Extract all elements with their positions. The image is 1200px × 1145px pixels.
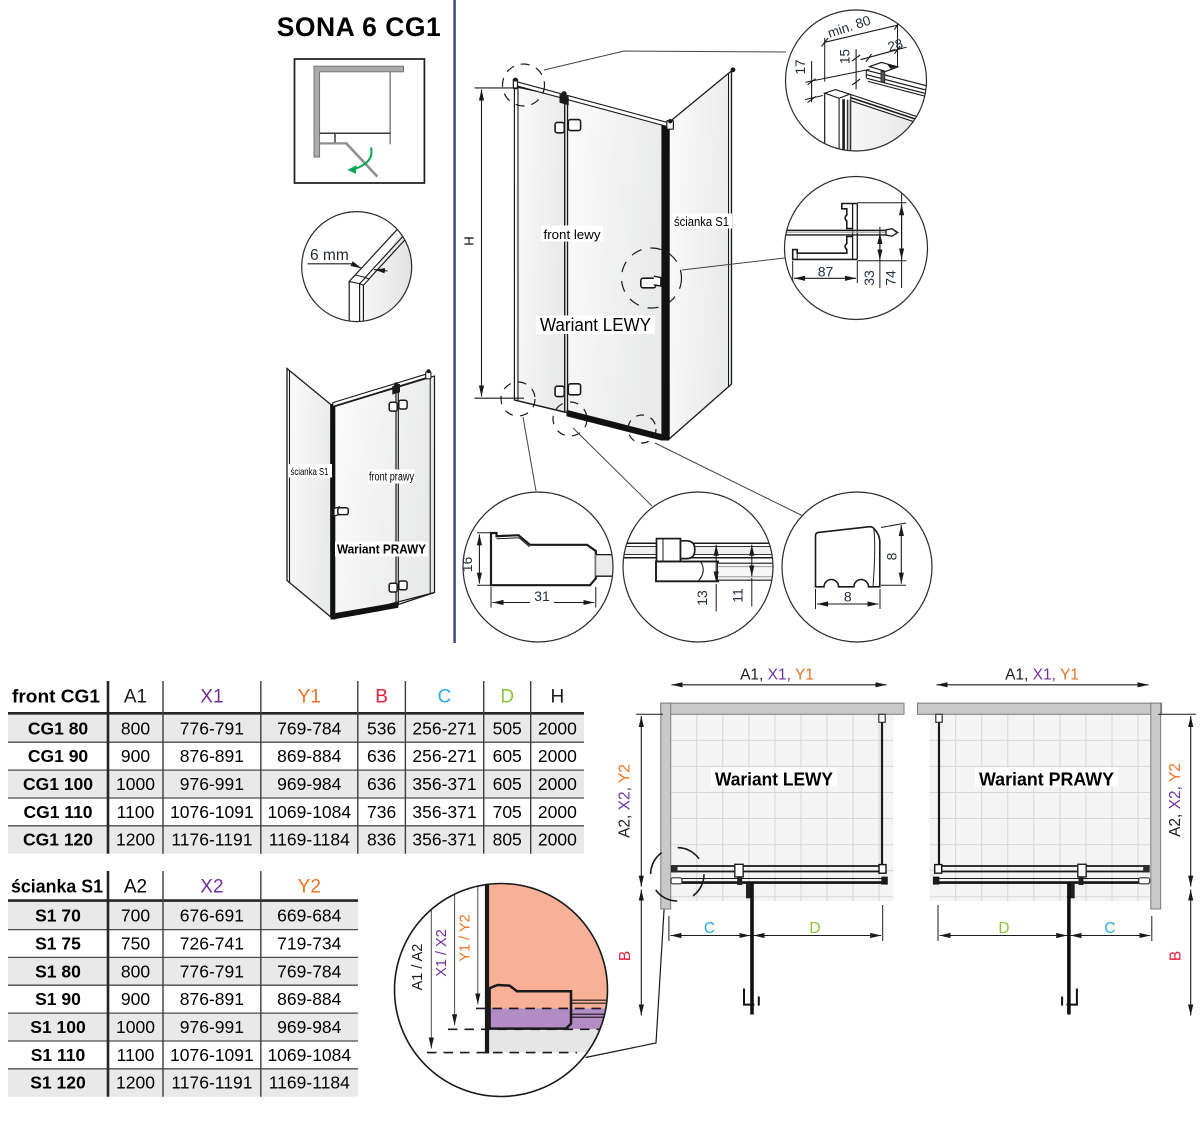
svg-text:C: C	[438, 686, 452, 707]
svg-text:B: B	[375, 686, 388, 707]
svg-text:A2: A2	[124, 876, 147, 897]
svg-text:X2: X2	[200, 876, 223, 897]
svg-text:S1 100: S1 100	[30, 1017, 86, 1037]
svg-text:769-784: 769-784	[277, 961, 341, 981]
svg-text:2000: 2000	[538, 774, 577, 794]
svg-text:Y2: Y2	[298, 876, 321, 897]
svg-text:Wariant PRAWY: Wariant PRAWY	[337, 542, 426, 557]
svg-text:1000: 1000	[116, 774, 155, 794]
svg-text:front lewy: front lewy	[544, 227, 602, 242]
svg-text:C: C	[1104, 920, 1115, 937]
svg-text:S1 90: S1 90	[35, 989, 81, 1009]
svg-text:Wariant PRAWY: Wariant PRAWY	[979, 768, 1115, 789]
svg-text:Wariant LEWY: Wariant LEWY	[540, 315, 651, 335]
svg-text:Y1: Y1	[298, 686, 321, 707]
svg-text:6 mm: 6 mm	[310, 247, 349, 264]
svg-text:C: C	[704, 920, 715, 937]
svg-text:605: 605	[493, 746, 522, 766]
svg-text:356-371: 356-371	[412, 774, 476, 794]
svg-text:750: 750	[121, 934, 150, 954]
svg-text:S1 110: S1 110	[31, 1045, 86, 1065]
svg-text:1069-1084: 1069-1084	[267, 802, 351, 822]
svg-text:A2, X2, Y2: A2, X2, Y2	[617, 764, 634, 838]
svg-text:S1 120: S1 120	[30, 1073, 86, 1093]
svg-text:CG1 110: CG1 110	[23, 802, 92, 822]
svg-text:Y1 / Y2: Y1 / Y2	[458, 914, 474, 961]
svg-text:D: D	[998, 920, 1009, 937]
svg-text:1076-1091: 1076-1091	[170, 802, 254, 822]
svg-text:A2, X2, Y2: A2, X2, Y2	[1167, 763, 1184, 837]
svg-text:X1 / X2: X1 / X2	[434, 929, 450, 977]
svg-text:736: 736	[367, 802, 396, 822]
svg-text:A1, X1, Y1: A1, X1, Y1	[1005, 667, 1079, 684]
svg-text:776-791: 776-791	[180, 718, 244, 738]
svg-text:356-371: 356-371	[412, 802, 476, 822]
svg-text:A1: A1	[124, 686, 147, 707]
svg-text:605: 605	[493, 774, 522, 794]
svg-text:1100: 1100	[117, 1045, 155, 1065]
svg-text:B: B	[1168, 951, 1185, 961]
svg-text:726-741: 726-741	[180, 934, 244, 954]
svg-text:A1, X1, Y1: A1, X1, Y1	[740, 667, 814, 684]
svg-text:13: 13	[694, 590, 710, 606]
svg-text:505: 505	[493, 718, 522, 738]
svg-text:A1 / A2: A1 / A2	[410, 944, 426, 991]
svg-text:976-991: 976-991	[180, 774, 244, 794]
svg-text:876-891: 876-891	[180, 989, 244, 1009]
svg-text:1069-1084: 1069-1084	[267, 1045, 351, 1065]
svg-text:1169-1184: 1169-1184	[269, 830, 350, 850]
svg-text:8: 8	[884, 552, 900, 560]
svg-text:676-691: 676-691	[180, 906, 244, 926]
svg-text:1176-1191: 1176-1191	[171, 830, 252, 850]
svg-text:Wariant LEWY: Wariant LEWY	[715, 768, 834, 789]
svg-text:636: 636	[367, 774, 396, 794]
svg-text:636: 636	[367, 746, 396, 766]
svg-text:ścianka S1: ścianka S1	[291, 466, 329, 478]
svg-text:2000: 2000	[538, 746, 577, 766]
svg-text:X1: X1	[200, 686, 223, 707]
svg-text:900: 900	[121, 746, 150, 766]
svg-text:D: D	[500, 686, 514, 707]
svg-text:900: 900	[121, 989, 150, 1009]
svg-text:256-271: 256-271	[412, 718, 476, 738]
svg-text:800: 800	[121, 718, 150, 738]
svg-text:15: 15	[838, 49, 853, 64]
svg-text:1200: 1200	[116, 830, 155, 850]
svg-text:1076-1091: 1076-1091	[170, 1045, 254, 1065]
svg-text:769-784: 769-784	[277, 718, 341, 738]
svg-text:1100: 1100	[117, 802, 155, 822]
svg-text:17: 17	[793, 59, 808, 74]
svg-text:705: 705	[493, 802, 522, 822]
svg-text:869-884: 869-884	[277, 989, 341, 1009]
svg-text:669-684: 669-684	[277, 906, 341, 926]
svg-text:S1 80: S1 80	[35, 961, 81, 981]
svg-text:969-984: 969-984	[277, 774, 341, 794]
svg-text:CG1 100: CG1 100	[23, 774, 93, 794]
svg-text:805: 805	[493, 830, 522, 850]
svg-text:776-791: 776-791	[180, 961, 244, 981]
svg-text:2000: 2000	[538, 718, 577, 738]
svg-text:87: 87	[818, 264, 834, 280]
svg-text:1169-1184: 1169-1184	[269, 1073, 350, 1093]
svg-text:976-991: 976-991	[180, 1017, 244, 1037]
svg-text:11: 11	[729, 588, 745, 603]
svg-text:CG1 80: CG1 80	[28, 718, 89, 738]
svg-text:CG1 120: CG1 120	[23, 830, 93, 850]
svg-text:H: H	[462, 236, 477, 245]
svg-text:front prawy: front prawy	[369, 472, 414, 484]
svg-text:1200: 1200	[116, 1073, 155, 1093]
svg-text:700: 700	[121, 906, 150, 926]
svg-text:256-271: 256-271	[412, 746, 476, 766]
svg-text:836: 836	[367, 830, 396, 850]
svg-text:CG1 90: CG1 90	[28, 746, 89, 766]
svg-text:D: D	[809, 920, 820, 937]
svg-text:356-371: 356-371	[412, 830, 476, 850]
svg-text:S1 70: S1 70	[35, 906, 81, 926]
svg-text:S1 75: S1 75	[35, 934, 81, 954]
svg-text:74: 74	[882, 270, 898, 286]
svg-text:33: 33	[861, 270, 877, 286]
svg-text:2000: 2000	[538, 802, 577, 822]
svg-text:719-734: 719-734	[277, 934, 341, 954]
svg-text:SONA 6 CG1: SONA 6 CG1	[277, 12, 442, 42]
svg-text:B: B	[617, 951, 634, 961]
svg-text:1176-1191: 1176-1191	[171, 1073, 252, 1093]
svg-text:800: 800	[121, 961, 150, 981]
svg-text:869-884: 869-884	[277, 746, 341, 766]
svg-text:2000: 2000	[538, 830, 577, 850]
svg-text:31: 31	[534, 588, 550, 604]
svg-text:H: H	[551, 686, 565, 707]
svg-text:16: 16	[459, 557, 475, 573]
svg-text:8: 8	[844, 589, 852, 605]
svg-text:front CG1: front CG1	[12, 685, 100, 706]
svg-text:536: 536	[367, 718, 396, 738]
svg-text:1000: 1000	[116, 1017, 155, 1037]
svg-text:969-984: 969-984	[277, 1017, 341, 1037]
svg-text:876-891: 876-891	[180, 746, 244, 766]
svg-text:ścianka S1: ścianka S1	[674, 214, 729, 229]
svg-text:ścianka S1: ścianka S1	[11, 875, 103, 896]
